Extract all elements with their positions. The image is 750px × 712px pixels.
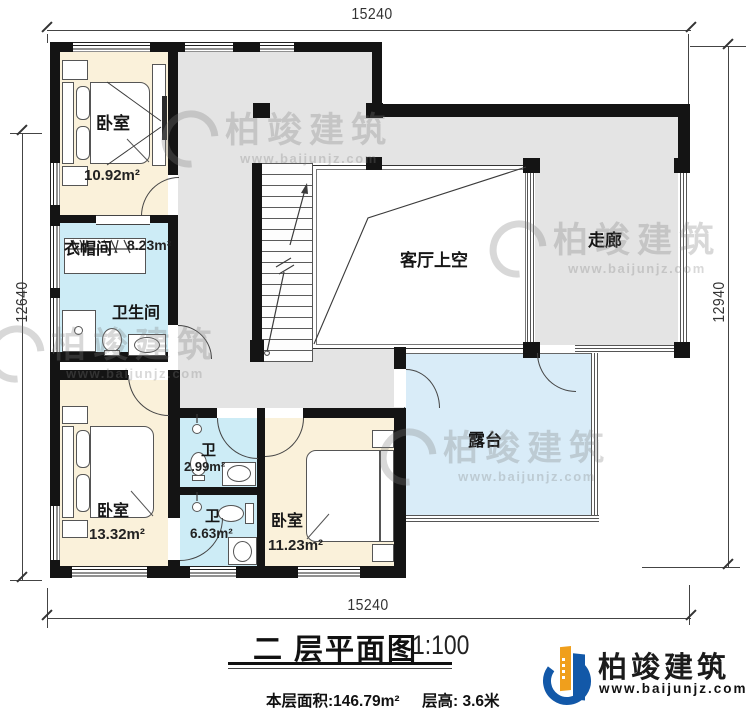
floor-height-text: 层高: 3.6米 xyxy=(422,689,500,711)
door-opening-terrace-left xyxy=(394,369,406,407)
room-area-bedroom-left: 13.32m² xyxy=(89,526,145,543)
title-underline-thick xyxy=(228,662,452,665)
door-opening-bath-main xyxy=(168,325,178,360)
column-void-top xyxy=(366,157,382,170)
railing-corridor-bottom xyxy=(575,345,674,353)
dim-value-right: 12940 xyxy=(711,277,729,326)
wall-bath-divider xyxy=(180,487,257,495)
room-area-bath-small: 2.99m² xyxy=(184,459,225,474)
door-opening-bath-ensuite xyxy=(168,518,180,560)
room-label-corridor: 走廊 xyxy=(588,226,622,251)
column-step xyxy=(366,103,383,118)
pillow xyxy=(76,474,90,512)
floor-hall-top xyxy=(178,52,372,163)
column-void-bottom-left xyxy=(250,340,264,362)
wall-bedroom-left-right-upper xyxy=(168,380,180,518)
dim-extension xyxy=(690,46,746,47)
dim-line-left xyxy=(22,133,23,580)
wall-stair-left xyxy=(252,163,262,362)
dim-extension xyxy=(688,34,689,104)
dim-extension xyxy=(10,580,42,581)
floor-area-text: 本层面积:146.79m² xyxy=(266,689,400,711)
dim-extension xyxy=(47,588,48,628)
wall-exterior-right xyxy=(678,105,690,160)
ceiling-lamp xyxy=(192,502,202,512)
room-label-bedroom-top: 卧室 xyxy=(96,109,130,134)
dim-value-bottom: 15240 xyxy=(329,597,406,615)
title-underline-thin xyxy=(228,668,452,669)
wall-bedroom-right-top xyxy=(303,408,406,418)
wall-bedroom-right-left xyxy=(257,408,265,578)
wall-bedroom-right-right xyxy=(394,408,406,578)
company-website: www.baijunjz.com xyxy=(599,681,748,696)
wall-bedroom-cloak-a xyxy=(60,215,96,223)
toilet-tank xyxy=(192,475,205,481)
bed-headboard xyxy=(62,426,74,518)
window-left-1 xyxy=(50,163,60,205)
sink xyxy=(134,337,160,353)
wall-step xyxy=(372,42,382,105)
window-left-2 xyxy=(50,226,60,288)
sink xyxy=(233,541,252,562)
staircase xyxy=(262,163,313,362)
room-area-bath-ensuite: 6.63m² xyxy=(190,526,233,541)
bed-headboard xyxy=(380,450,394,542)
dim-line-top xyxy=(47,30,691,31)
column-void-top-right xyxy=(523,158,540,173)
window-bottom-1 xyxy=(72,566,147,578)
logo-building-orange xyxy=(560,646,571,691)
wall-terrace-stub xyxy=(394,347,406,369)
room-label-bath-small: 卫 xyxy=(201,439,216,460)
railing-terrace-bottom xyxy=(404,515,599,523)
room-area-bedroom-right: 11.23m² xyxy=(268,537,323,554)
window-left-3 xyxy=(50,298,60,352)
room-label-bath-ensuite: 卫 xyxy=(205,505,220,526)
dim-value-top: 15240 xyxy=(333,6,410,24)
column-corridor-top-right xyxy=(674,158,690,173)
window-top-2 xyxy=(185,42,233,52)
nightstand xyxy=(372,544,394,562)
room-label-terrace: 露台 xyxy=(468,426,502,451)
window-bottom-3 xyxy=(298,566,360,578)
nightstand xyxy=(62,406,88,424)
cased-opening-cloakroom xyxy=(96,215,150,225)
dim-extension xyxy=(10,133,42,134)
wall-bath-top xyxy=(180,408,217,418)
nightstand xyxy=(372,430,394,448)
tv xyxy=(162,96,167,140)
wall-bedroom-cloak-b xyxy=(150,215,168,223)
railing-corridor-left xyxy=(527,173,535,342)
drawing-scale: 1:100 xyxy=(412,630,469,661)
ceiling-lamp xyxy=(192,424,202,434)
shower-drain xyxy=(74,326,83,335)
room-area-cloakroom: 8.23m² xyxy=(127,237,171,253)
railing-terrace-right xyxy=(591,353,599,519)
column-corridor-bottom-right xyxy=(674,342,690,358)
sink xyxy=(227,465,251,482)
toilet xyxy=(102,328,122,352)
dim-line-bottom xyxy=(47,618,691,619)
dim-extension xyxy=(47,34,48,43)
window-bottom-2 xyxy=(190,566,236,578)
room-label-living-void: 客厅上空 xyxy=(400,246,468,271)
dim-tick xyxy=(685,21,696,32)
pillow xyxy=(76,430,90,468)
toilet-tank xyxy=(104,350,120,356)
column-hall xyxy=(253,103,270,118)
window-left-4 xyxy=(50,506,60,560)
dim-extension xyxy=(689,585,690,625)
wall-bedroom-left-right-lower xyxy=(168,560,180,578)
toilet-tank xyxy=(245,503,254,524)
logo-building-blue xyxy=(573,653,585,700)
company-logo-icon xyxy=(542,644,594,706)
room-area-bedroom-top: 10.92m² xyxy=(84,167,140,184)
dim-value-left: 12640 xyxy=(14,277,32,326)
wall-bedroom-left-top-corner xyxy=(168,370,180,380)
window-top-3 xyxy=(260,42,294,52)
dim-tick xyxy=(685,609,696,620)
railing-corridor-right xyxy=(680,173,689,342)
window-top-1 xyxy=(73,42,150,52)
floorplan-canvas: 卧室 10.92m² 衣帽间 8.23m² 卫生间 客厅上空 走廊 卧室 13.… xyxy=(0,0,750,712)
wall-cloak-right xyxy=(168,215,178,325)
wall-bedroom-left-top xyxy=(50,370,128,380)
bed xyxy=(306,450,380,542)
nightstand xyxy=(62,60,88,80)
nightstand xyxy=(62,520,88,538)
room-label-bedroom-left: 卧室 xyxy=(97,497,129,521)
bed-headboard xyxy=(62,82,74,164)
company-name: 柏竣建筑 xyxy=(598,644,730,686)
room-label-bathroom-main: 卫生间 xyxy=(112,299,160,323)
pillow xyxy=(76,126,90,160)
wall-exterior-top-right xyxy=(380,104,690,117)
pillow xyxy=(76,86,90,120)
room-label-bedroom-right: 卧室 xyxy=(271,507,303,531)
room-label-cloakroom: 衣帽间 xyxy=(64,235,112,259)
floor-hall-left xyxy=(178,163,252,347)
